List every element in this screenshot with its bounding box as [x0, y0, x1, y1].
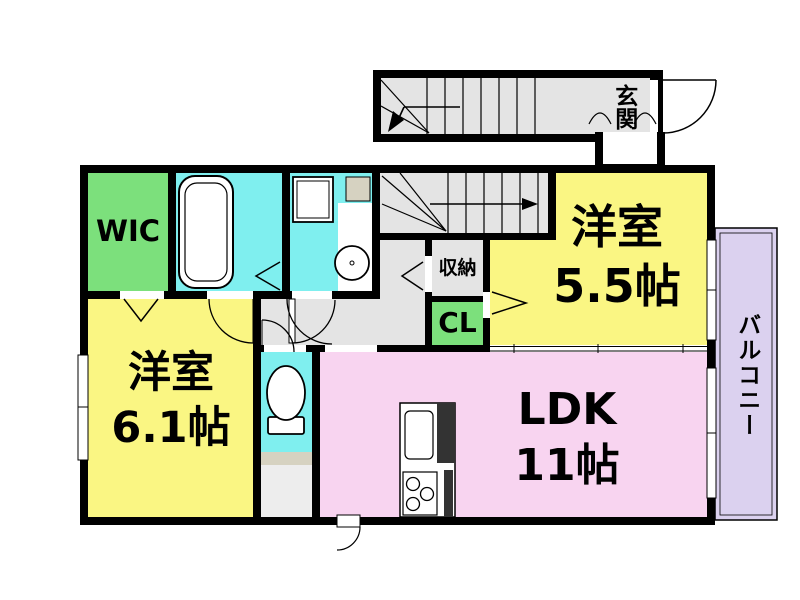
closet-label: CL [432, 300, 483, 345]
wic-label: WIC [88, 173, 168, 291]
floor-plan: WIC 洋室 5.5帖 洋室 6.1帖 LDK 11帖 CL 収納 玄関 バルコ… [0, 0, 800, 600]
hallway [380, 240, 425, 345]
toilet [267, 366, 305, 434]
room-name: 洋室 [510, 198, 724, 257]
room-name: 洋室 [88, 346, 254, 401]
utility-space [261, 465, 312, 517]
ldk-label: LDK 11帖 [442, 382, 692, 495]
washroom-counter [346, 177, 370, 201]
kitchen-sink [405, 411, 433, 459]
room-name: LDK [442, 382, 692, 438]
wash-basin [335, 246, 369, 280]
toilet-counter [261, 452, 312, 465]
bathtub [179, 176, 233, 288]
entrance-label: 玄関 [606, 80, 640, 134]
room-size: 5.5帖 [510, 257, 724, 316]
washing-machine [293, 177, 333, 222]
room-size: 6.1帖 [88, 401, 254, 456]
storage-label: 収納 [430, 240, 485, 296]
bedroom-5-5-label: 洋室 5.5帖 [510, 198, 724, 316]
sliding-partition [490, 344, 707, 353]
room-size: 11帖 [442, 438, 692, 494]
hallway [261, 299, 380, 345]
bedroom-6-1-label: 洋室 6.1帖 [88, 346, 254, 456]
balcony-label: バルコニー [726, 245, 766, 505]
